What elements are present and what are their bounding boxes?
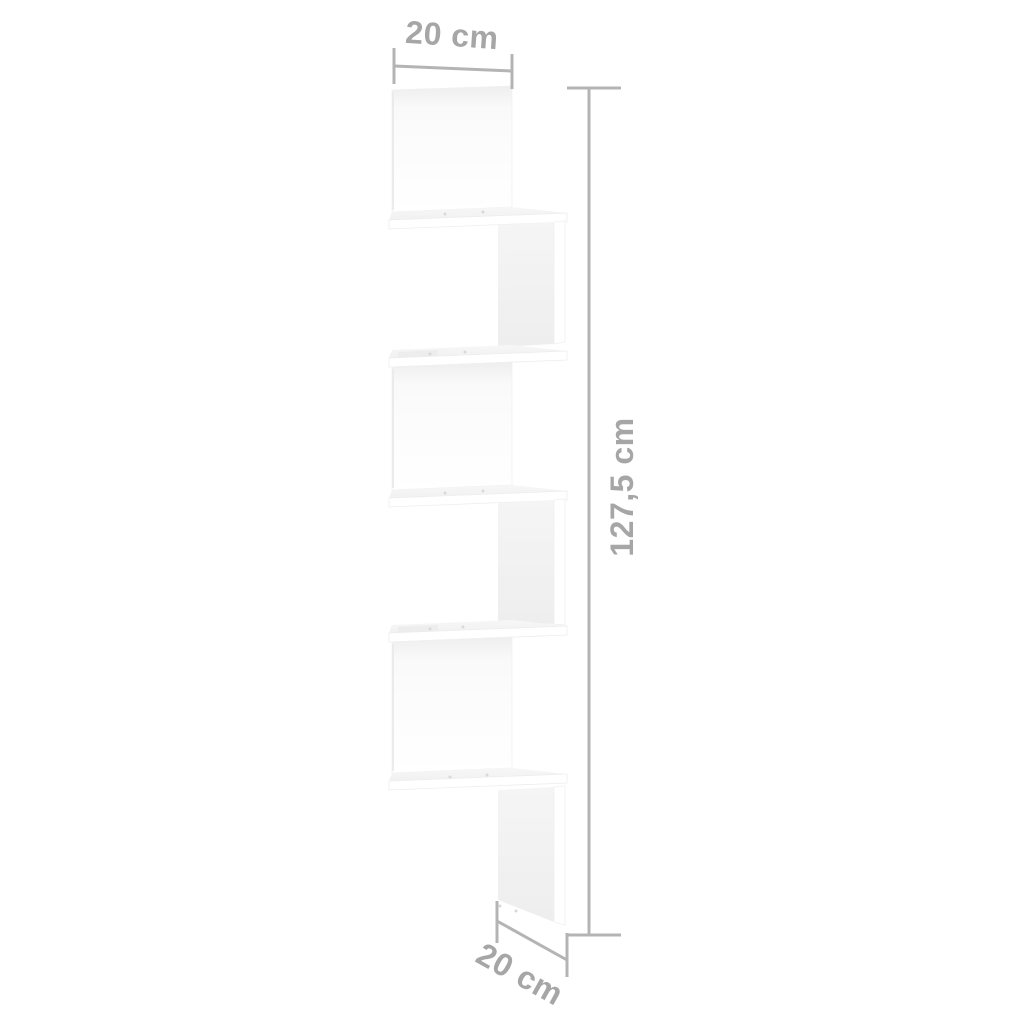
- screw-dot: [486, 774, 489, 777]
- shelf-panel-2-front-edge: [554, 221, 565, 344]
- label-top-width: 20 cm: [404, 14, 500, 56]
- screw-dot: [449, 776, 452, 779]
- screw-dot: [429, 628, 432, 631]
- shelf-panel-3-front: [392, 362, 512, 490]
- screw-dot: [482, 490, 485, 493]
- screw-dot: [462, 626, 465, 629]
- shelf-panel-4-side: [498, 500, 554, 624]
- screw-dot: [444, 492, 447, 495]
- diagram-canvas: 20 cm 127,5 cm 20 cm: [0, 0, 1024, 1024]
- shelf-panel-6-front-edge: [554, 786, 565, 925]
- shelf-panel-2-side: [498, 222, 554, 347]
- product-dimension-diagram: 20 cm 127,5 cm 20 cm: [0, 0, 1024, 1024]
- shelf-panel-4-front-edge: [554, 499, 565, 625]
- screw-dot: [464, 351, 467, 354]
- shelf-panel-6-side: [498, 787, 554, 922]
- screw-dot: [515, 910, 518, 913]
- shelf-panel-1-front: [392, 86, 512, 212]
- label-side-height: 127,5 cm: [604, 417, 640, 556]
- screw-dot: [444, 213, 447, 216]
- screw-dot: [429, 353, 432, 356]
- screw-dot: [482, 211, 485, 214]
- shelf-panel-5-front: [392, 637, 512, 773]
- screw-dot: [499, 905, 502, 908]
